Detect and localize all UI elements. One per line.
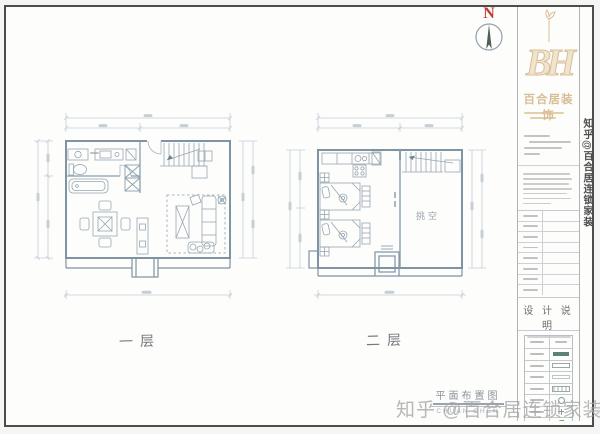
floor1-staircase [160, 143, 207, 178]
north-label: N [472, 6, 506, 21]
rug-icon-1 [362, 186, 370, 207]
bathtub-icon [69, 179, 108, 193]
floor2-plan [265, 108, 495, 308]
rug-icon-2 [362, 223, 370, 244]
void-railing [394, 150, 400, 268]
form-row [518, 232, 579, 243]
bed-icon-2 [320, 220, 360, 247]
dining-set [80, 201, 130, 247]
lily-flower-icon [542, 9, 556, 43]
project-info-table [518, 211, 579, 298]
column-cabinet [137, 218, 148, 254]
form-row [518, 211, 579, 222]
floor1-caption: 一层 [105, 330, 175, 352]
washbasin-icon [68, 149, 88, 160]
kitchen-counter [95, 149, 123, 160]
floor2-staircase [402, 152, 460, 172]
form-row [518, 243, 579, 254]
design-note: 设 计 说 明 [518, 298, 579, 331]
bed-icon-1 [320, 183, 360, 210]
floor2-caption: 二层 [352, 329, 422, 351]
company-logo: BH [518, 7, 579, 91]
form-row [518, 285, 579, 295]
page: N [0, 0, 600, 434]
void-room-label: 挑空 [405, 209, 451, 222]
entry-door-icon [147, 139, 161, 154]
notes-paragraph [518, 166, 579, 211]
nightstand-icon-2 [320, 210, 329, 219]
side-watermark: 知乎@百合居连锁家装 [579, 118, 594, 228]
nightstand-icon-3 [320, 247, 329, 256]
form-row [518, 222, 579, 233]
floor1-terrace [66, 258, 230, 277]
plant-icon [218, 196, 226, 204]
legend-row [525, 372, 572, 384]
north-indicator: N [472, 6, 506, 58]
legend-row [525, 384, 572, 396]
legend-header [525, 336, 572, 349]
title-block: BH 百合居装饰 [517, 7, 580, 421]
chimney-box [375, 246, 399, 276]
toilet-icon [69, 164, 87, 175]
compass-icon [473, 21, 505, 53]
stove-icon [353, 165, 366, 177]
contact-info-lines [518, 129, 579, 166]
floor2-dimensions [286, 113, 486, 299]
legend-row [525, 349, 572, 361]
logo-monogram: BH [518, 41, 579, 85]
entry-cabinet [198, 151, 212, 161]
form-row [518, 253, 579, 264]
bottom-watermark: 知乎 @百合居连锁家装 [396, 395, 600, 422]
form-row [518, 264, 579, 275]
design-note-title: 设 计 说 明 [518, 302, 579, 332]
kitchenette-counter [322, 153, 380, 164]
flue-icon [126, 149, 136, 160]
tv-cabinet [176, 206, 189, 238]
annotation-marks [90, 152, 99, 154]
cushion-icon [190, 195, 201, 206]
legend-row [525, 361, 572, 373]
shaft-icon [125, 165, 140, 191]
nightstand-icon-1 [320, 173, 329, 182]
company-name: 百合居装饰 [518, 91, 579, 106]
floor1-plan [20, 108, 265, 308]
form-row [518, 275, 579, 286]
